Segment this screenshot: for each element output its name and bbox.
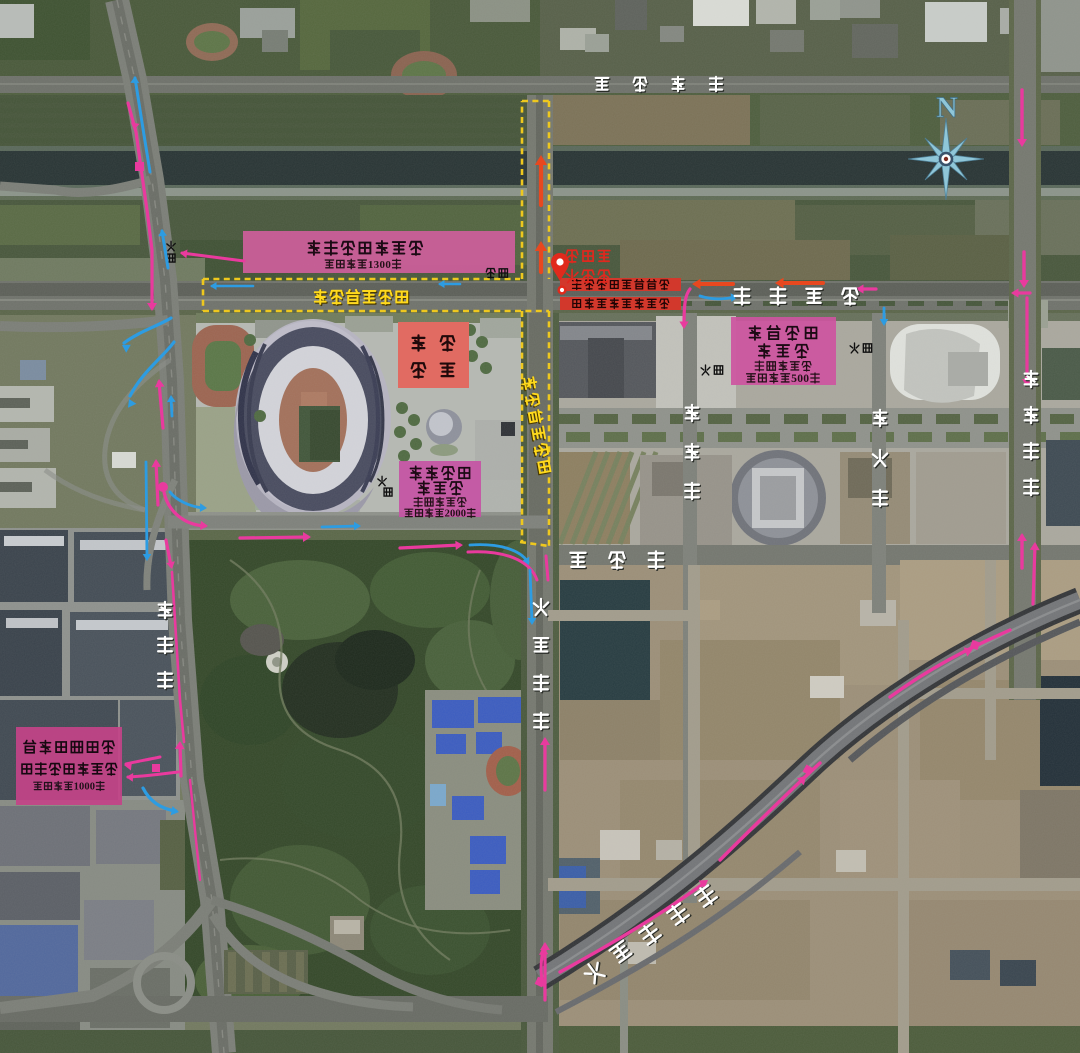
- svg-text:0: 0: [90, 782, 95, 793]
- svg-text:0: 0: [803, 372, 809, 385]
- svg-text:0: 0: [461, 509, 466, 520]
- svg-text:5: 5: [791, 372, 797, 385]
- svg-text:N: N: [936, 91, 958, 124]
- svg-text:0: 0: [385, 259, 391, 271]
- svg-text:1: 1: [368, 259, 374, 271]
- svg-text:0: 0: [797, 372, 803, 385]
